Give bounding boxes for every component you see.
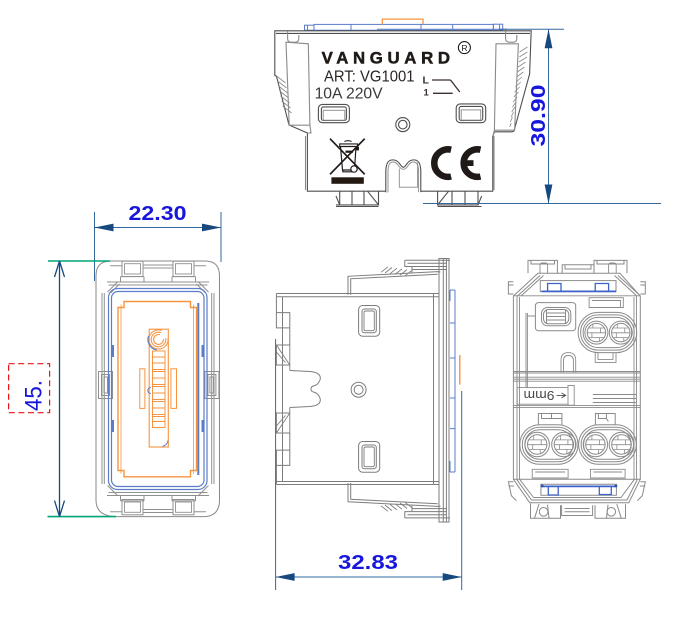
svg-text:45.: 45. [21,380,48,411]
svg-text:ART: VG1001: ART: VG1001 [324,68,415,85]
svg-text:22.30: 22.30 [129,203,187,225]
svg-text:9mm: 9mm [524,388,555,403]
svg-text:VANGUARD: VANGUARD [322,48,455,67]
svg-text:R: R [461,43,467,53]
svg-text:30.90: 30.90 [528,85,550,147]
svg-text:L: L [423,74,430,86]
svg-text:10A 220V: 10A 220V [315,86,383,103]
svg-text:32.83: 32.83 [338,552,398,574]
svg-text:1: 1 [424,88,430,99]
